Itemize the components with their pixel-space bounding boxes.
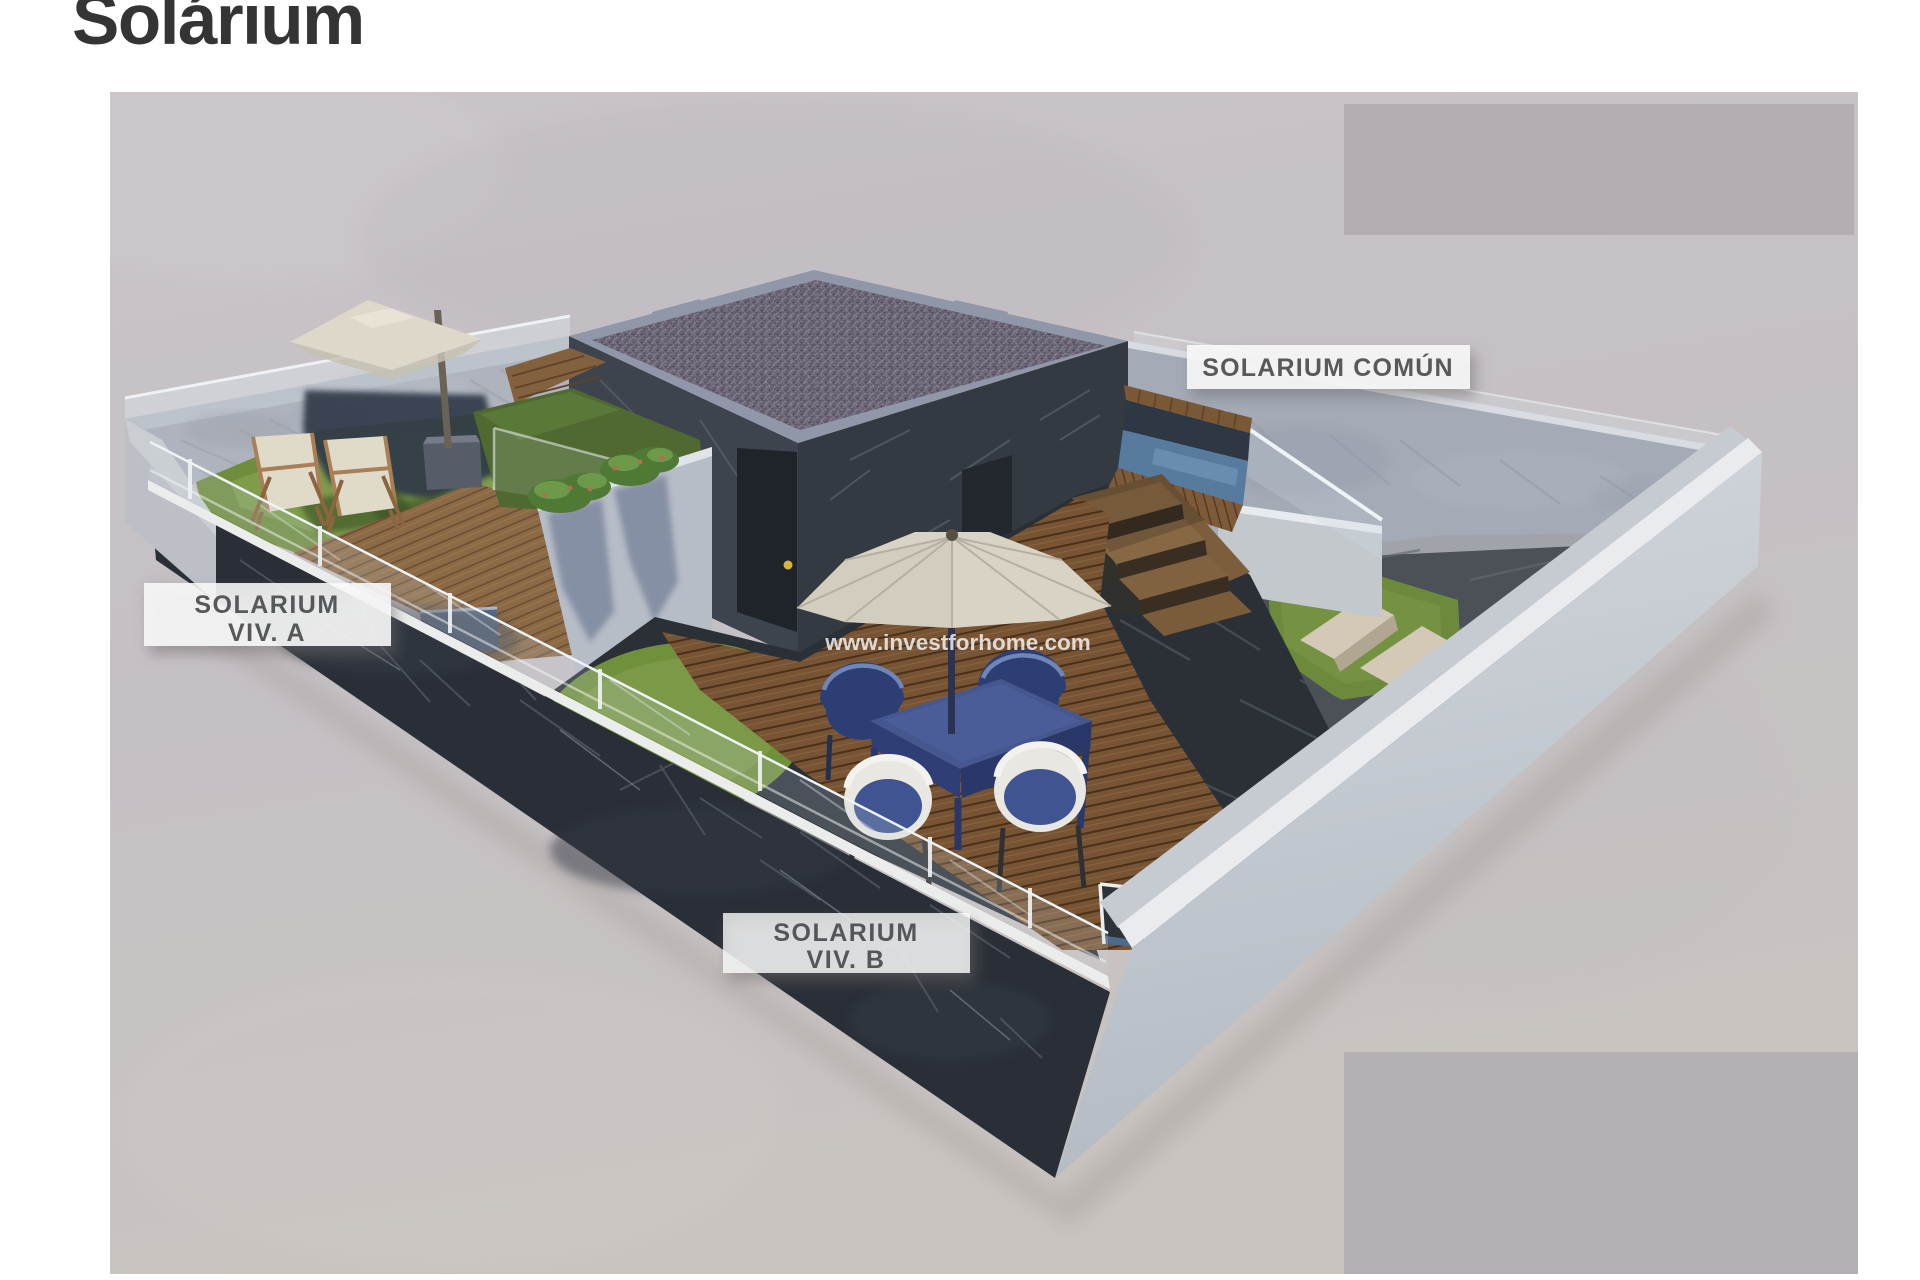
svg-text:VIV. A: VIV. A	[228, 619, 306, 647]
svg-text:SOLARIUM: SOLARIUM	[194, 591, 339, 619]
svg-text:SOLARIUM: SOLARIUM	[773, 919, 918, 947]
svg-text:www.investforhome.com: www.investforhome.com	[824, 630, 1090, 655]
svg-text:SOLARIUM COMÚN: SOLARIUM COMÚN	[1202, 352, 1454, 382]
svg-text:VIV. B: VIV. B	[807, 946, 886, 974]
